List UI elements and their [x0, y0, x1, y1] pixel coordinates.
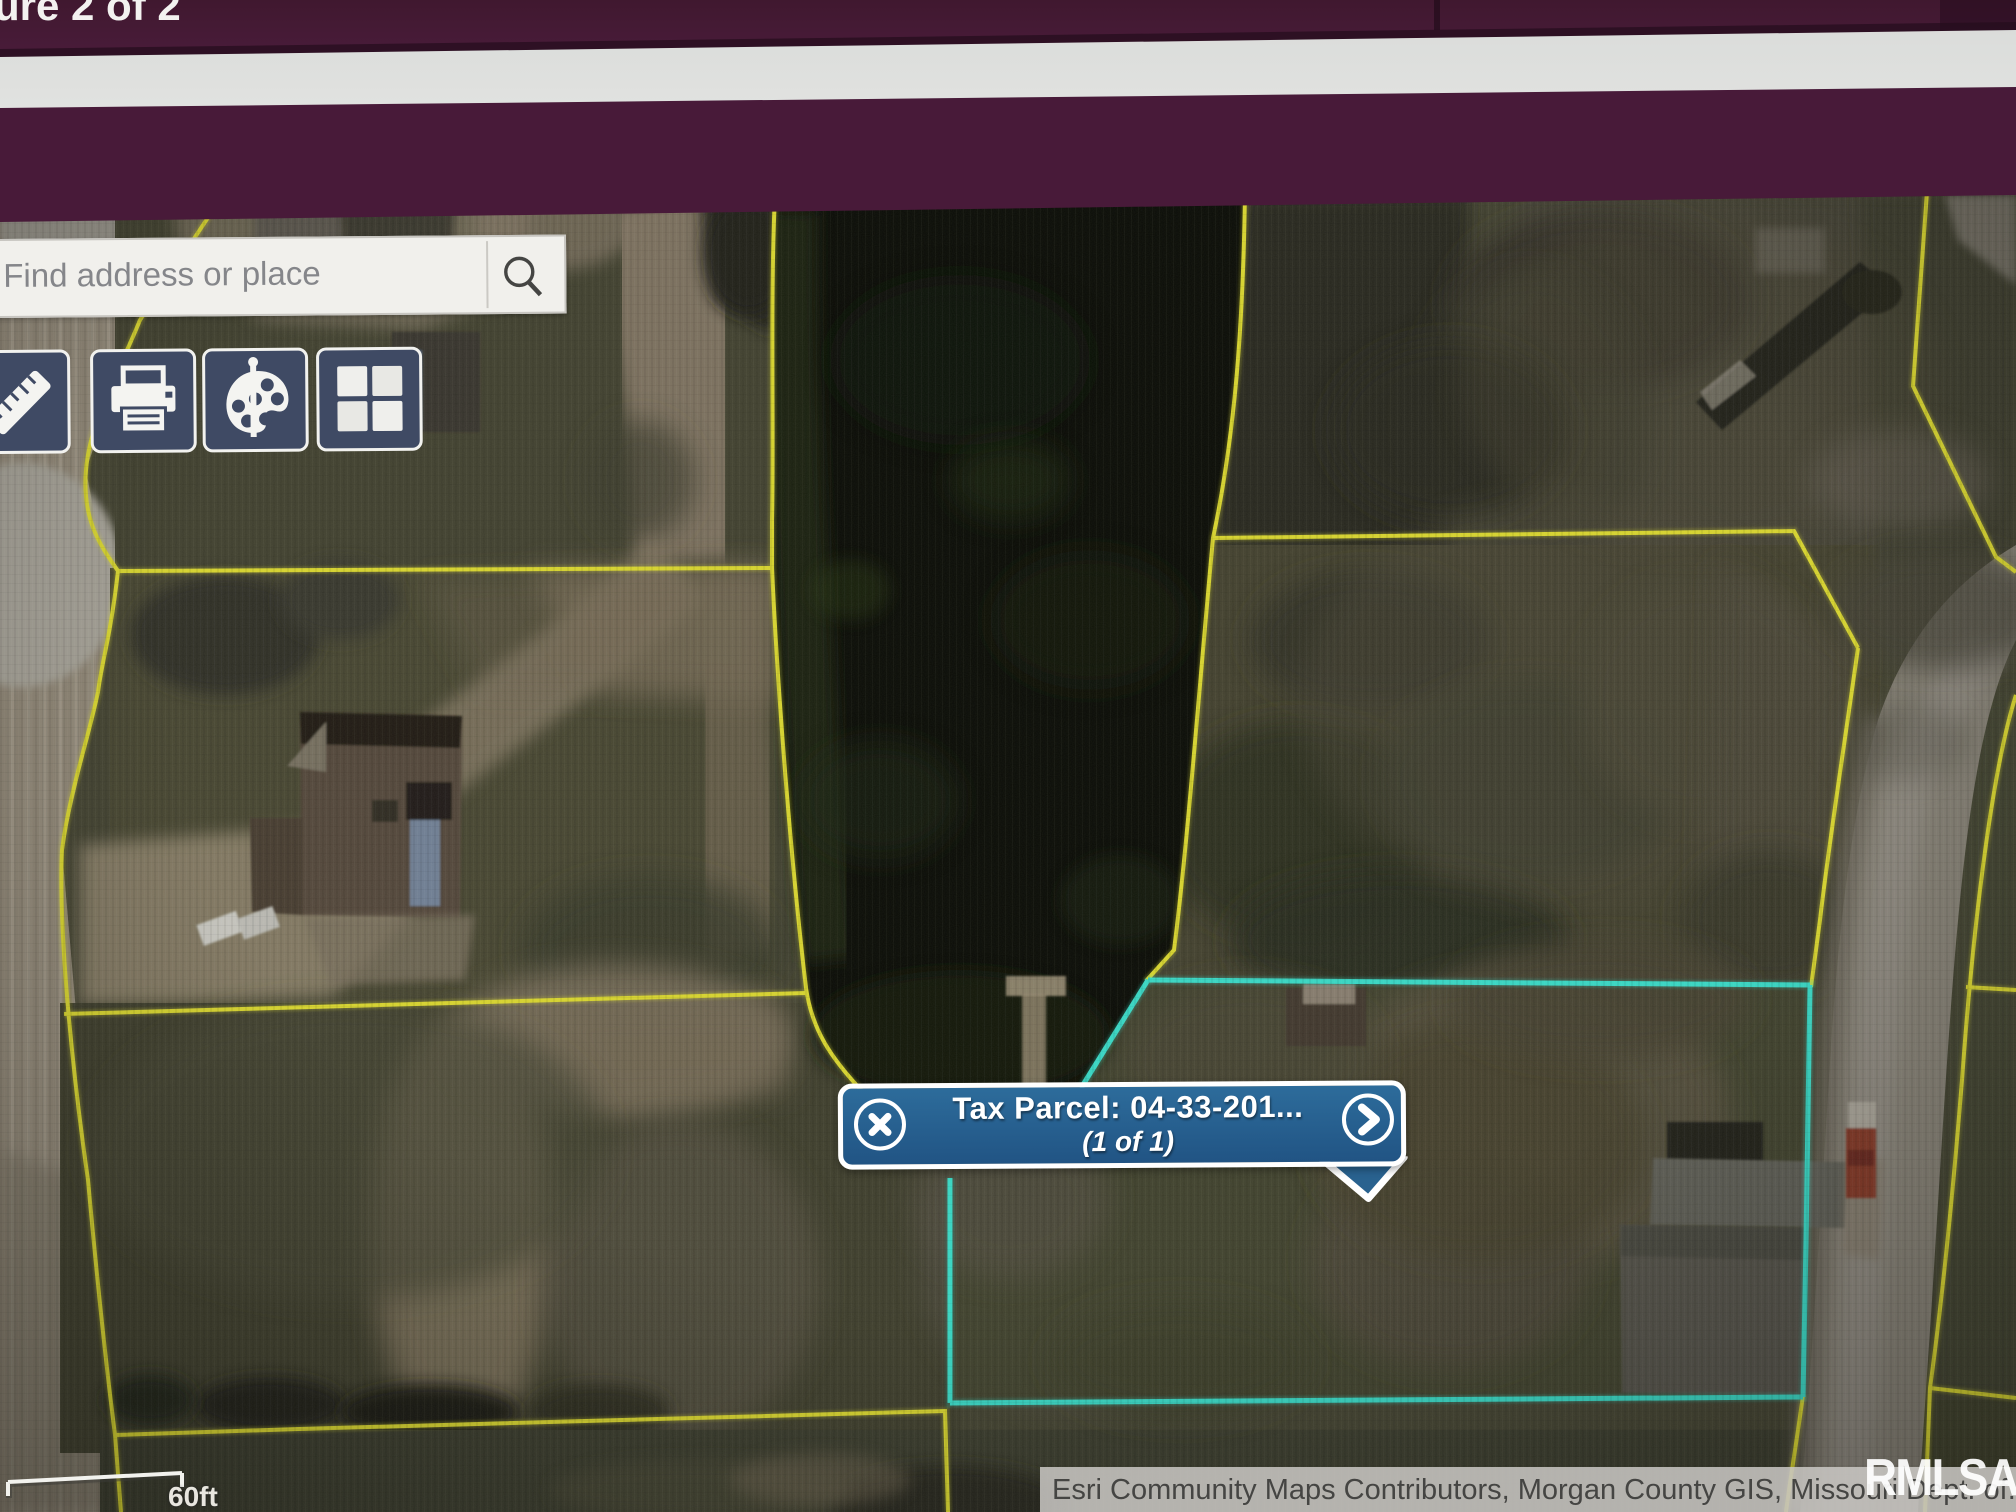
svg-text:60ft: 60ft [168, 1481, 218, 1512]
